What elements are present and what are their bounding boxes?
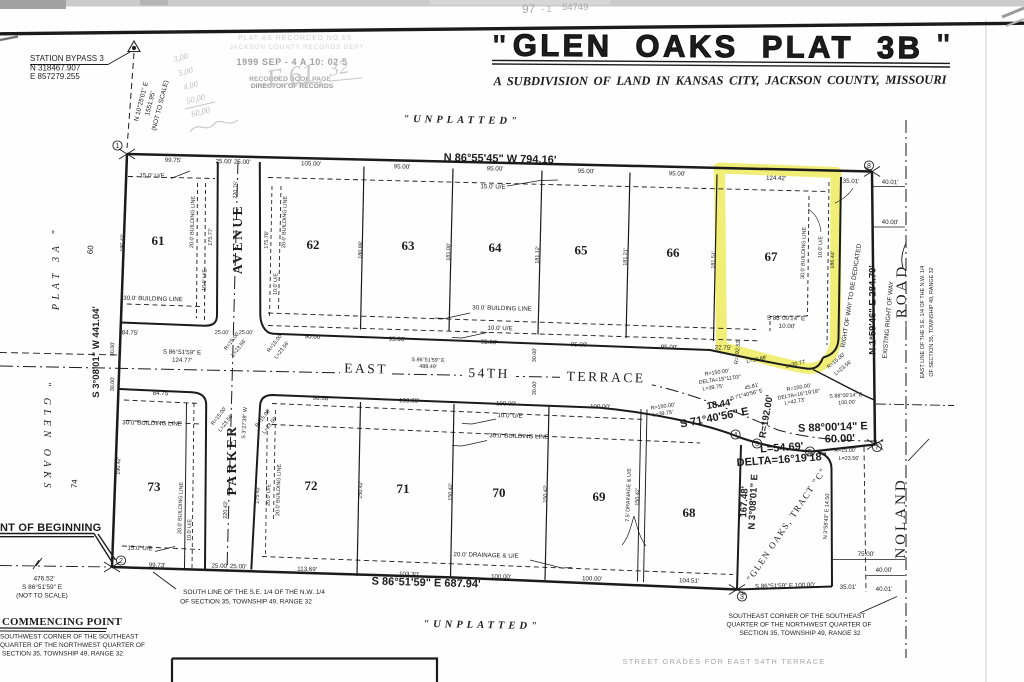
svg-text:" GLEN OAKS: " GLEN OAKS (41, 382, 52, 492)
svg-text:15.0' U/E: 15.0' U/E (480, 183, 505, 191)
svg-text:104.51': 104.51' (679, 577, 699, 585)
svg-text:JACKSON COUNTY RECORDS DEPT: JACKSON COUNTY RECORDS DEPT (230, 44, 365, 51)
svg-text:ROAD: ROAD (894, 264, 910, 319)
svg-text:75.00': 75.00' (858, 551, 875, 558)
svg-text:60.00': 60.00' (825, 432, 856, 445)
svg-text:100.00': 100.00' (399, 397, 419, 405)
svg-text:71: 71 (397, 481, 410, 496)
svg-text:20.0' U/E: 20.0' U/E (266, 483, 273, 506)
svg-text:103.30': 103.30' (399, 571, 419, 579)
svg-text:54TH: 54TH (468, 365, 510, 381)
svg-text:180.88': 180.88' (358, 241, 365, 259)
svg-text:220.75': 220.75' (233, 181, 240, 199)
svg-text:10.0' U/E: 10.0' U/E (273, 272, 280, 295)
svg-text:QUARTER OF THE NORTHWEST QUART: QUARTER OF THE NORTHWEST QUARTER OF (0, 642, 145, 649)
svg-text:181.12': 181.12' (535, 246, 542, 264)
svg-text:30.00': 30.00' (532, 381, 539, 396)
svg-text:40.01': 40.01' (882, 179, 899, 186)
svg-text:SOUTHWEST CORNER OF THE SOUTHE: SOUTHWEST CORNER OF THE SOUTHEAST (0, 634, 138, 641)
svg-text:10.0' U/E: 10.0' U/E (487, 325, 512, 333)
svg-text:"UNPLATTED": "UNPLATTED" (403, 114, 521, 127)
svg-text:95.00': 95.00' (578, 168, 595, 175)
svg-text:99.73': 99.73' (149, 562, 166, 569)
svg-text:PARKER: PARKER (224, 425, 239, 496)
svg-text:(NOT TO SCALE): (NOT TO SCALE) (16, 593, 68, 600)
svg-text:2: 2 (119, 558, 123, 565)
svg-text:181.00': 181.00' (446, 243, 453, 261)
svg-text:E 857279.255: E 857279.255 (30, 72, 80, 81)
svg-text:124.77': 124.77' (172, 357, 192, 365)
svg-text:NOLAND: NOLAND (893, 477, 909, 558)
svg-text:10.0' U/E: 10.0' U/E (818, 235, 825, 258)
svg-text:8: 8 (867, 163, 871, 170)
svg-text:68: 68 (683, 505, 697, 520)
svg-text:30.0' BUILDING LINE: 30.0' BUILDING LINE (123, 295, 183, 303)
svg-text:22.75': 22.75' (715, 344, 732, 351)
svg-text:25.00': 25.00' (215, 330, 230, 336)
svg-text:62: 62 (307, 237, 320, 252)
svg-text:32: 32 (326, 55, 351, 81)
svg-text:S 88°00'14" E: S 88°00'14" E (767, 315, 805, 323)
svg-text:74: 74 (70, 478, 80, 488)
svg-text:488.49': 488.49' (419, 364, 437, 370)
svg-text:100.00': 100.00' (582, 575, 602, 583)
svg-text:95.00': 95.00' (669, 170, 686, 177)
svg-text:OF SECTION 35, TOWNSHIP 49, RA: OF SECTION 35, TOWNSHIP 49, RANGE 32 (180, 599, 312, 606)
svg-text:73: 73 (148, 479, 162, 494)
svg-text:40.00': 40.00' (882, 219, 899, 226)
svg-text:95.00': 95.00' (487, 165, 504, 172)
svg-text:100.00': 100.00' (496, 400, 516, 408)
svg-text:95.00': 95.00' (389, 336, 406, 343)
svg-text:100.00': 100.00' (838, 400, 856, 407)
svg-text:- 1: - 1 (541, 4, 552, 14)
svg-text:A SUBDIVISION OF LAND IN: A SUBDIVISION OF LAND IN KANSAS CITY, JA… (492, 73, 947, 89)
svg-text:15.0' U/E: 15.0' U/E (127, 545, 152, 553)
svg-text:84.75': 84.75' (153, 390, 170, 397)
svg-text:10.0' U/E: 10.0' U/E (497, 412, 522, 420)
svg-text:64: 64 (489, 240, 503, 255)
svg-text:60: 60 (86, 244, 96, 254)
svg-text:10.00': 10.00' (779, 323, 796, 330)
svg-text:3: 3 (740, 594, 744, 601)
svg-text:95.00': 95.00' (571, 341, 588, 348)
svg-text:30.00': 30.00' (110, 377, 117, 392)
svg-text:7: 7 (875, 444, 879, 451)
svg-text:25.00': 25.00' (239, 330, 254, 336)
svg-text:TERRACE: TERRACE (566, 368, 645, 385)
svg-text:EAST LINE OF THE S.E. 1/4 OF T: EAST LINE OF THE S.E. 1/4 OF THE N.W. 1/… (920, 266, 926, 379)
svg-text:10.0' U/E: 10.0' U/E (202, 268, 209, 291)
svg-text:N 86°55'45" W 794.16': N 86°55'45" W 794.16' (444, 152, 557, 167)
svg-text:5: 5 (755, 441, 759, 448)
svg-text:186.44': 186.44' (830, 251, 837, 269)
svg-text:100.00': 100.00' (590, 403, 610, 411)
svg-text:181.21': 181.21' (623, 248, 630, 266)
svg-text:": " (936, 27, 954, 62)
svg-text:30.0' BUILDING LINE: 30.0' BUILDING LINE (472, 304, 532, 312)
svg-text:220.43': 220.43' (223, 501, 230, 519)
svg-text:95.00': 95.00' (481, 339, 498, 346)
svg-text:90.00': 90.00' (305, 333, 322, 340)
svg-text:72: 72 (305, 478, 318, 493)
svg-text:65: 65 (575, 243, 589, 258)
svg-text:40.01': 40.01' (876, 586, 893, 593)
svg-text:63: 63 (402, 238, 416, 253)
svg-text:175.42': 175.42' (255, 486, 262, 504)
svg-text:R=15.00': R=15.00' (834, 448, 856, 454)
svg-text:35.01': 35.01' (843, 178, 860, 185)
svg-text:98.68': 98.68' (313, 395, 330, 402)
svg-text:S 86°51'59" E: S 86°51'59" E (22, 583, 63, 591)
svg-text:S 86°51'59" E: S 86°51'59" E (163, 349, 201, 357)
svg-text:NT OF BEGINNING: NT OF BEGINNING (0, 522, 101, 534)
svg-text:1: 1 (116, 143, 120, 150)
svg-text:SOUTHEAST CORNER OF THE SOUTHE: SOUTHEAST CORNER OF THE SOUTHEAST (729, 613, 866, 620)
svg-text:35.01': 35.01' (840, 584, 857, 591)
svg-text:25.00' 25.00': 25.00' 25.00' (215, 158, 250, 166)
svg-text:113.69': 113.69' (297, 566, 317, 574)
svg-text:QUARTER OF THE NORTHWEST QUART: QUARTER OF THE NORTHWEST QUARTER OF (727, 622, 872, 629)
svg-text:10.0' U/E: 10.0' U/E (187, 518, 194, 541)
svg-text:181.51': 181.51' (711, 251, 718, 269)
svg-text:S 86°51'59" E: S 86°51'59" E (411, 357, 445, 364)
svg-text:15.0' U/E: 15.0' U/E (139, 172, 164, 180)
svg-text:150.42': 150.42' (448, 483, 455, 501)
svg-text:54749: 54749 (562, 2, 588, 13)
svg-text:84.75': 84.75' (122, 329, 139, 336)
svg-text:N 1°59'46" E 284.79': N 1°59'46" E 284.79' (868, 265, 879, 354)
svg-text:150.42': 150.42' (635, 488, 642, 506)
svg-text:190.42': 190.42' (120, 234, 127, 252)
svg-text:99.75': 99.75' (165, 157, 182, 164)
svg-text:EAST: EAST (344, 360, 388, 376)
svg-text:175.77': 175.77' (208, 228, 215, 246)
svg-text:150.42': 150.42' (358, 481, 365, 499)
svg-text:66: 66 (667, 245, 681, 260)
svg-text:OF SECTION 35, TOWNSHIP 49, RA: OF SECTION 35, TOWNSHIP 49, RANGE 32 (929, 267, 935, 376)
svg-text:67: 67 (765, 249, 779, 264)
svg-text:70: 70 (493, 485, 506, 500)
svg-text:30.00': 30.00' (110, 342, 117, 357)
svg-text:SECTION 35, TOWNSHIP 49, RANGE: SECTION 35, TOWNSHIP 49, RANGE 32 (2, 651, 123, 658)
svg-text:476.52': 476.52' (33, 576, 54, 583)
svg-text:GLEN OAKS PLAT 3B: GLEN OAKS PLAT 3B (513, 28, 924, 66)
svg-text:175.78': 175.78' (264, 231, 271, 249)
svg-text:69: 69 (593, 489, 607, 504)
svg-text:4: 4 (734, 432, 738, 439)
svg-text:STREET GRADES FOR EAST 54TH TE: STREET GRADES FOR EAST 54TH TERRACE (623, 657, 826, 666)
svg-text:105.00': 105.00' (301, 160, 321, 167)
svg-text:STATION BYPASS 3: STATION BYPASS 3 (30, 54, 104, 63)
svg-text:SOUTH LINE OF THE S.E. 1/4 OF: SOUTH LINE OF THE S.E. 1/4 OF THE N.W. 1… (183, 589, 325, 596)
svg-text:AVENUE: AVENUE (230, 204, 245, 274)
svg-text:40.00': 40.00' (876, 567, 893, 574)
svg-text:97: 97 (522, 2, 536, 16)
svg-text:SECTION 35, TOWNSHIP 49, RANGE: SECTION 35, TOWNSHIP 49, RANGE 32 (739, 630, 860, 637)
svg-text:190.42': 190.42' (116, 457, 123, 475)
svg-text:"UNPLATTED": "UNPLATTED" (423, 619, 541, 632)
svg-text:95.00': 95.00' (394, 163, 411, 170)
svg-text:124.42': 124.42' (766, 175, 786, 182)
svg-text:PLAT AS RECORDED NO 65: PLAT AS RECORDED NO 65 (238, 35, 352, 42)
svg-text:S 3°08'01" W 441.04': S 3°08'01" W 441.04' (91, 306, 102, 398)
svg-text:30.00': 30.00' (532, 348, 539, 363)
svg-text:": " (492, 28, 510, 63)
svg-text:PLAT 3A ": PLAT 3A " (51, 226, 62, 311)
svg-text:COMMENCING POINT: COMMENCING POINT (2, 616, 122, 628)
svg-text:95.00': 95.00' (661, 344, 678, 351)
svg-text:150.42': 150.42' (543, 485, 550, 503)
svg-text:100.00': 100.00' (491, 573, 511, 581)
svg-text:25.00' 25.00': 25.00' 25.00' (211, 563, 246, 571)
svg-text:61: 61 (152, 233, 165, 248)
svg-text:L=23.56': L=23.56' (839, 456, 860, 462)
